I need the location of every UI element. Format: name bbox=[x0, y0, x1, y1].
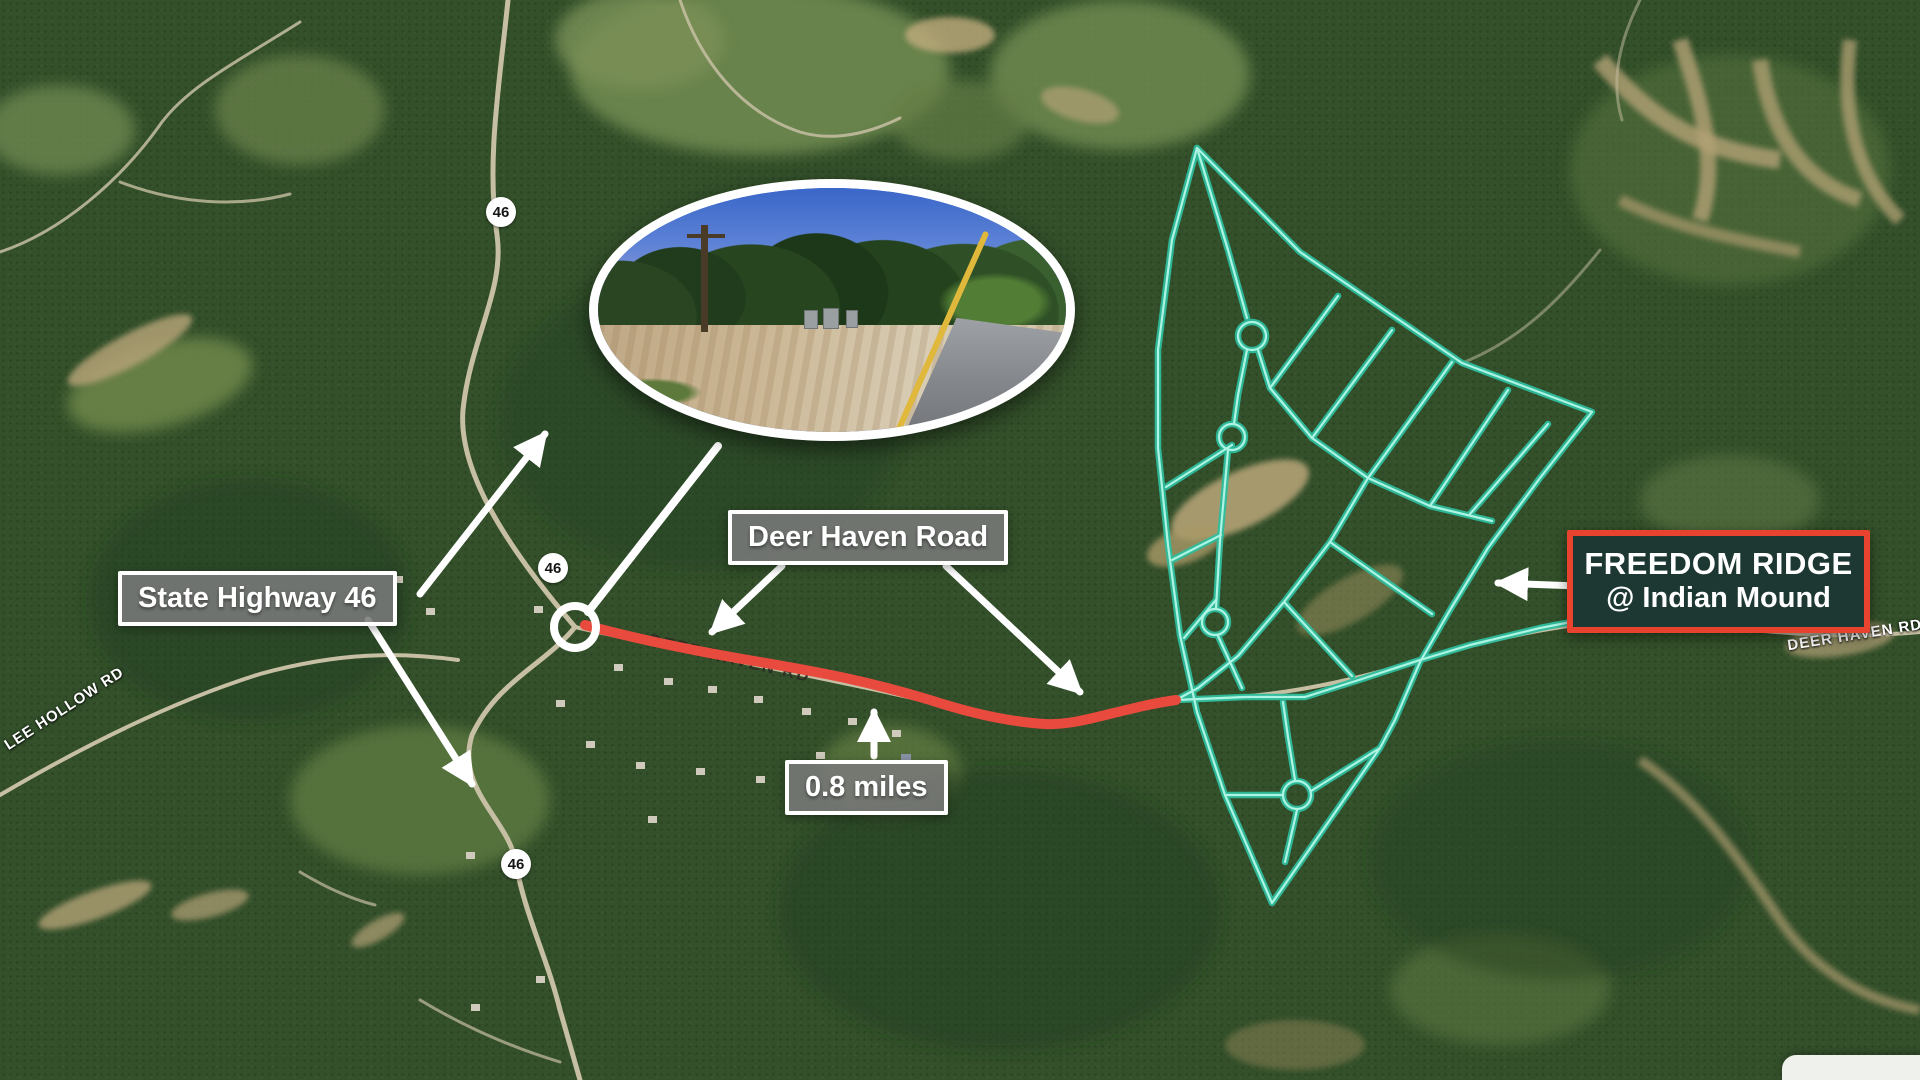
destination-subname: @ Indian Mound bbox=[1579, 582, 1858, 615]
shield-number: 46 bbox=[545, 560, 562, 577]
photo-utility-box bbox=[823, 308, 839, 329]
callout-state-highway-46: State Highway 46 bbox=[118, 571, 397, 626]
shield-number: 46 bbox=[508, 856, 525, 873]
property-location-map: DEER HAVEN RD bbox=[0, 0, 1920, 1080]
photo-utility-crossarm bbox=[687, 234, 725, 238]
destination-callout-freedom-ridge: FREEDOM RIDGE @ Indian Mound bbox=[1567, 530, 1870, 633]
callout-deer-haven-road: Deer Haven Road bbox=[728, 510, 1008, 565]
photo-grass bbox=[589, 373, 720, 412]
photo-utility-box bbox=[846, 310, 858, 328]
highway-46-shield-south: 46 bbox=[501, 849, 531, 879]
shield-number: 46 bbox=[493, 204, 510, 221]
photo-utility-box bbox=[804, 310, 818, 329]
highway-46-shield-north: 46 bbox=[486, 197, 516, 227]
arrow-to-highway-north bbox=[420, 434, 545, 594]
arrow-to-deer-haven-west bbox=[712, 566, 782, 632]
callout-distance: 0.8 miles bbox=[785, 760, 948, 815]
highway-46-shield-middle: 46 bbox=[538, 553, 568, 583]
entrance-photo bbox=[589, 179, 1075, 441]
arrow-to-deer-haven-east bbox=[946, 566, 1080, 692]
destination-name: FREEDOM RIDGE bbox=[1579, 546, 1858, 582]
corner-overlay-card[interactable] bbox=[1782, 1055, 1920, 1080]
arrow-to-subdivision bbox=[1498, 583, 1578, 586]
photo-utility-pole bbox=[701, 225, 708, 332]
